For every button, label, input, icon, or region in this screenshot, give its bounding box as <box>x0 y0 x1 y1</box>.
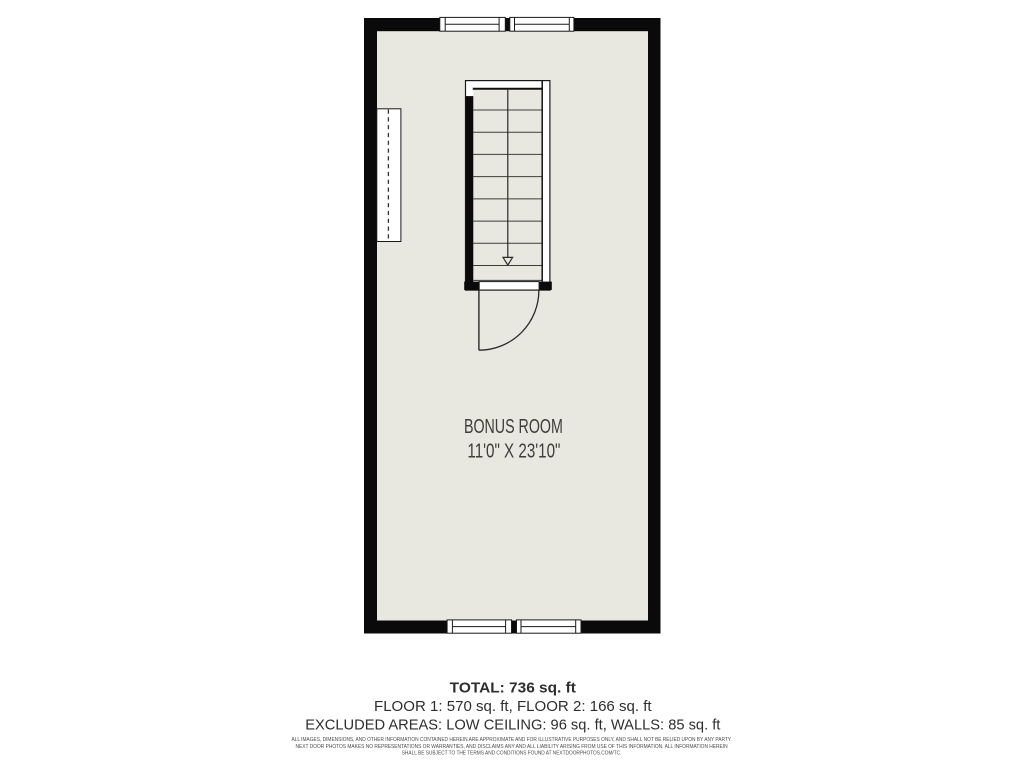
svg-text:BONUS ROOM: BONUS ROOM <box>464 415 563 438</box>
svg-text:FLOOR 1: 570 sq. ft, FLOOR 2:: FLOOR 1: 570 sq. ft, FLOOR 2: 166 sq. ft <box>374 698 652 715</box>
svg-text:ALL IMAGES, DIMENSIONS, AND OT: ALL IMAGES, DIMENSIONS, AND OTHER INFORM… <box>291 737 732 743</box>
svg-text:SHALL BE SUBJECT TO THE TERMS: SHALL BE SUBJECT TO THE TERMS AND CONDIT… <box>402 751 622 757</box>
svg-text:EXCLUDED AREAS: LOW CEILING: 9: EXCLUDED AREAS: LOW CEILING: 96 sq. ft, … <box>305 716 721 733</box>
svg-text:11'0" X 23'10": 11'0" X 23'10" <box>467 439 560 462</box>
svg-text:TOTAL: 736 sq. ft: TOTAL: 736 sq. ft <box>450 679 576 696</box>
svg-text:NEXT DOOR PHOTOS MAKES NO REPR: NEXT DOOR PHOTOS MAKES NO REPRESENTATION… <box>296 744 728 750</box>
